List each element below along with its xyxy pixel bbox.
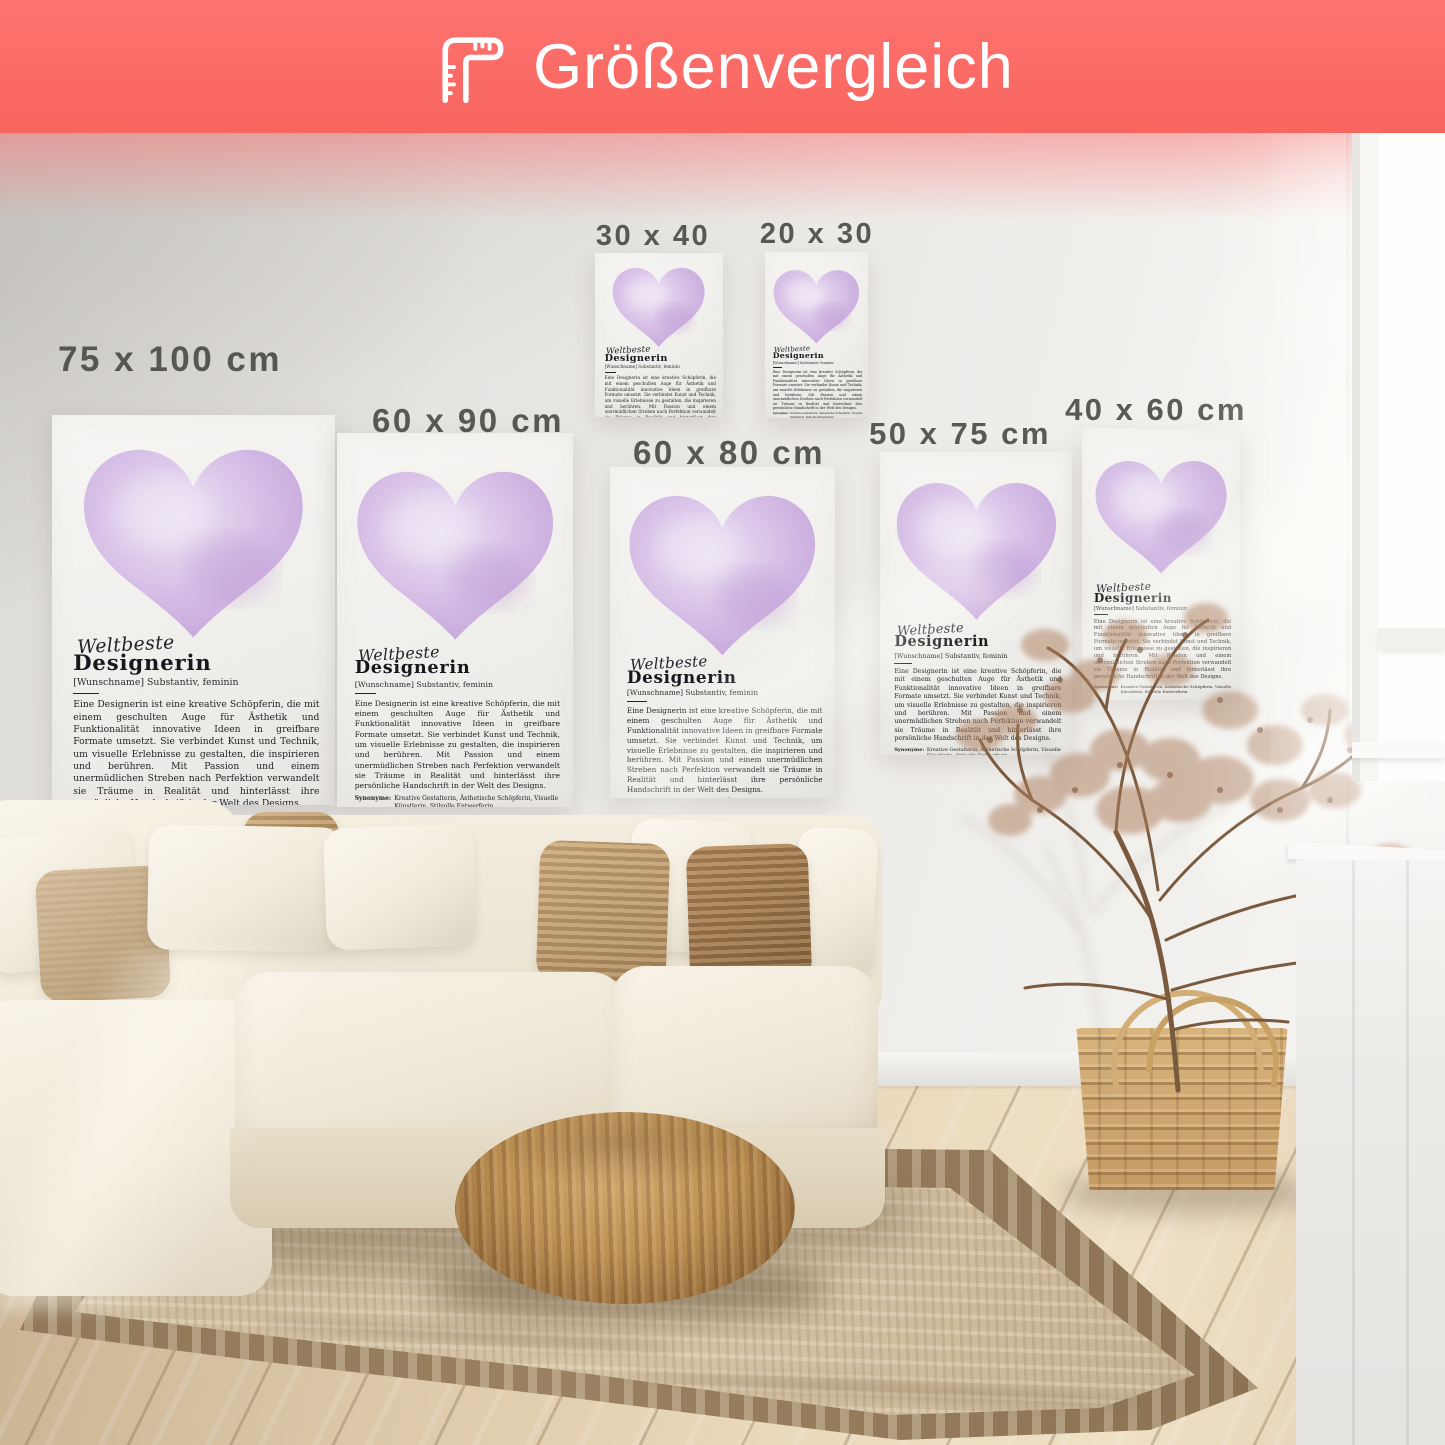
white-cabinet [1296,860,1445,1445]
corner-ruler-icon [431,29,507,105]
size-label-40x60: 40 x 60 cm [1041,392,1271,428]
poster-synonyms-text: Kreative Gestalterin, Ästhetische Schöpf… [394,795,560,807]
window-sill [1352,742,1445,758]
size-comparison-banner: Größenvergleich [0,0,1445,133]
size-label-75x100: 75 x 100 cm [40,340,300,380]
banner-glow [0,133,1445,221]
poster-75x100: Weltbeste Designerin [Wunschname] Substa… [52,415,335,805]
poster-subtitle: [Wunschname] Substantiv, feminin [73,677,319,688]
wicker-pouf [455,1112,795,1304]
pillow-tan-woven [536,840,671,986]
poster-body-text: Eine Designerin ist eine kreative Schöpf… [355,699,560,792]
poster-subtitle: [Wunschname] Substantiv, feminin [605,365,716,370]
poster-synonyms-label: Synonyme: [355,795,391,807]
poster-text-block: Weltbeste Designerin [Wunschname] Substa… [73,631,319,805]
window [1352,133,1445,781]
pillow-white [147,824,344,952]
poster-text-block: Weltbeste Designerin [Wunschname] Substa… [773,344,863,418]
poster-body-text: Eine Designerin ist eine kreative Schöpf… [73,699,319,805]
poster-20x30: Weltbeste Designerin [Wunschname] Substa… [765,252,868,418]
watercolor-heart-icon [621,480,824,665]
poster-synonyms: Synonyme:Kreative Gestalterin, Ästhetisc… [355,795,560,807]
poster-synonyms-label: Synonyme: [773,412,789,418]
poster-60x90: Weltbeste Designerin [Wunschname] Substa… [337,433,573,807]
poster-body-text: Eine Designerin ist eine kreative Schöpf… [773,370,863,411]
watercolor-heart-icon [770,259,863,352]
window-sash [1378,628,1445,650]
poster-divider [355,693,377,694]
poster-subtitle: [Wunschname] Substantiv, feminin [773,361,863,365]
poster-divider [773,367,783,368]
poster-subtitle: [Wunschname] Substantiv, feminin [355,680,560,689]
watercolor-heart-icon [601,260,716,352]
banner-title: Größenvergleich [533,31,1014,103]
poster-divider [73,693,99,694]
poster-text-block: Weltbeste Designerin [Wunschname] Substa… [605,344,716,417]
sunlight-on-sofa [0,950,340,1310]
watercolor-heart-icon [349,448,561,657]
poster-synonyms-text: Kreative Gestalterin, Ästhetische Schöpf… [790,412,862,418]
size-comparison-mockup: 75 x 100 cm 60 x 90 cm 30 x 40 cm 20 x 3… [0,0,1445,1445]
poster-30x40: Weltbeste Designerin [Wunschname] Substa… [595,253,723,417]
pillow-white [323,823,477,950]
watercolor-heart-icon [66,431,321,649]
poster-text-block: Weltbeste Designerin [Wunschname] Substa… [355,641,560,807]
poster-divider [605,372,617,373]
poster-divider [627,701,647,702]
poster-synonyms: Synonyme:Kreative Gestalterin, Ästhetisc… [773,412,863,418]
poster-body-text: Eine Designerin ist eine kreative Schöpf… [605,375,716,417]
